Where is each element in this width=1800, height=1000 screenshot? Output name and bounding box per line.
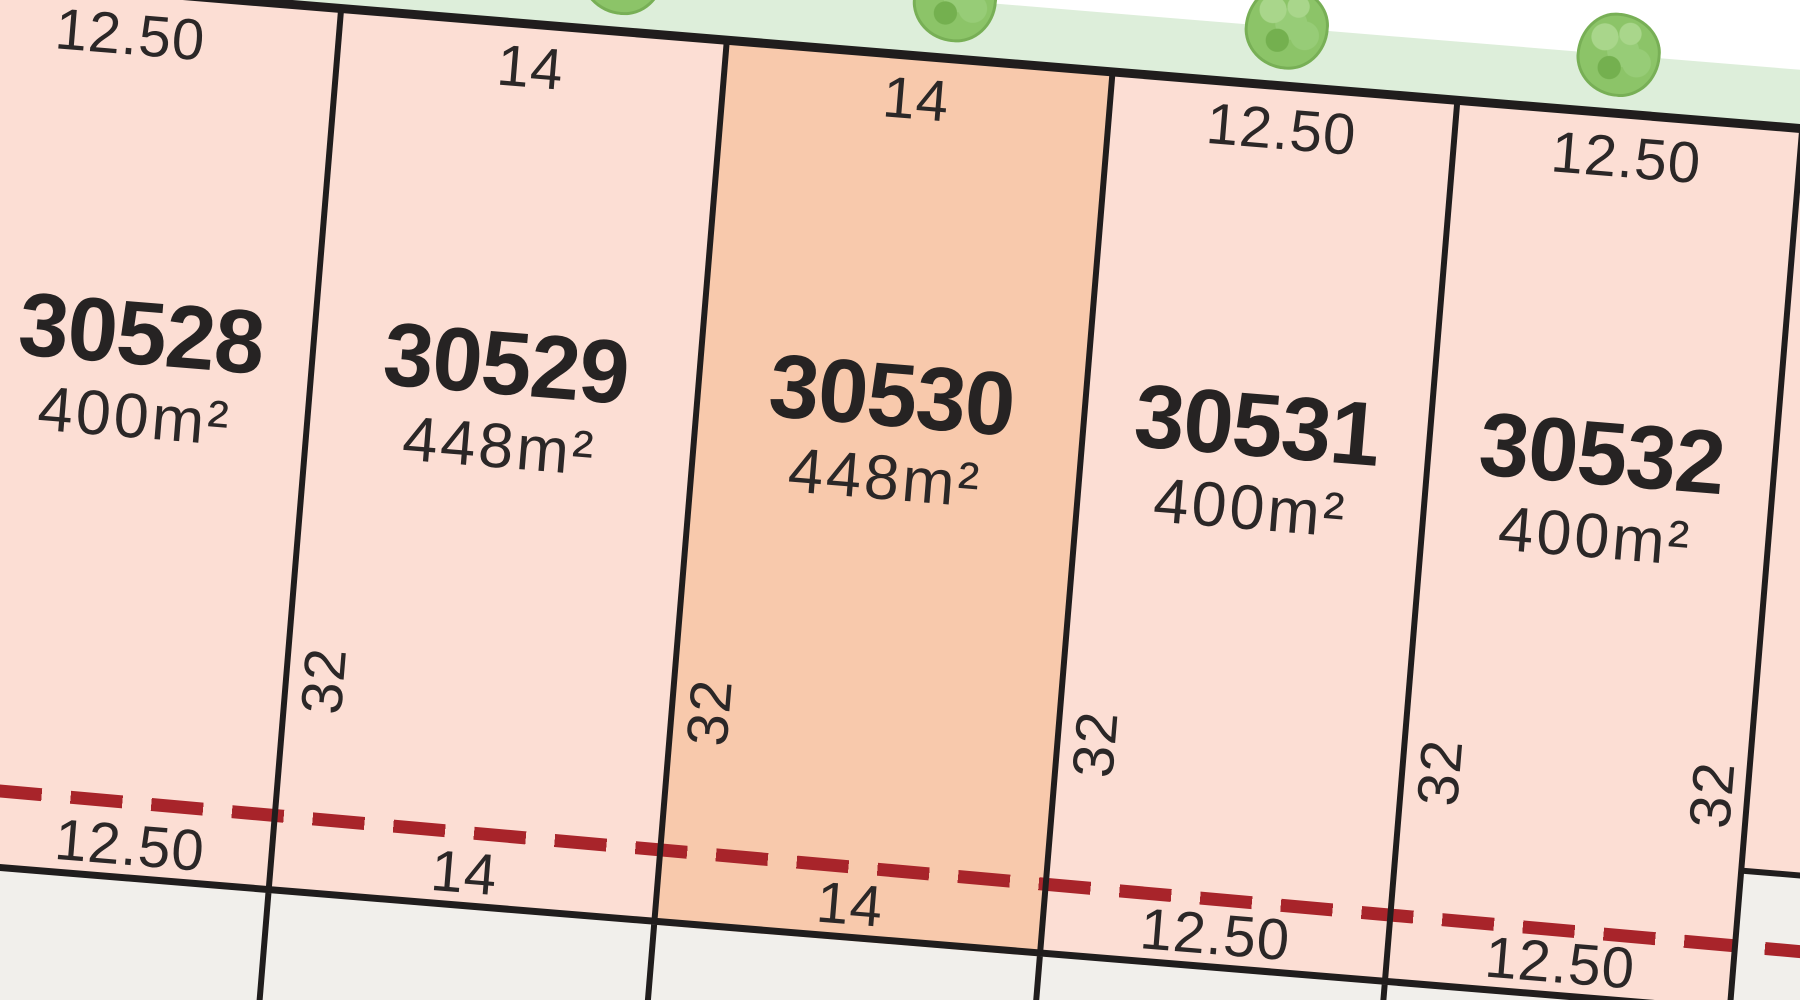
lot-depth-label: 32 bbox=[288, 645, 360, 717]
lot-depth-label: 32 bbox=[1676, 759, 1748, 831]
lot-depth-label: 32 bbox=[1404, 737, 1476, 809]
lot-rear-label: 14 bbox=[428, 837, 500, 909]
subdivision-plan: 12.5030528400m²12.501430529448m²14321430… bbox=[0, 0, 1800, 1000]
lot-depth-label: 32 bbox=[1059, 708, 1131, 780]
lot-frontage-label: 12.50 bbox=[1549, 118, 1704, 197]
subdivision-plan-viewport: 12.5030528400m²12.501430529448m²14321430… bbox=[0, 0, 1800, 1000]
lot-frontage-label: 14 bbox=[495, 32, 567, 104]
lot-frontage-label: 14 bbox=[880, 63, 952, 135]
lot-depth-label: 32 bbox=[674, 677, 746, 749]
lot-frontage-label: 12.50 bbox=[1204, 90, 1359, 169]
lot-rear-label: 14 bbox=[814, 869, 886, 941]
lot-frontage-label: 12.50 bbox=[53, 0, 208, 74]
